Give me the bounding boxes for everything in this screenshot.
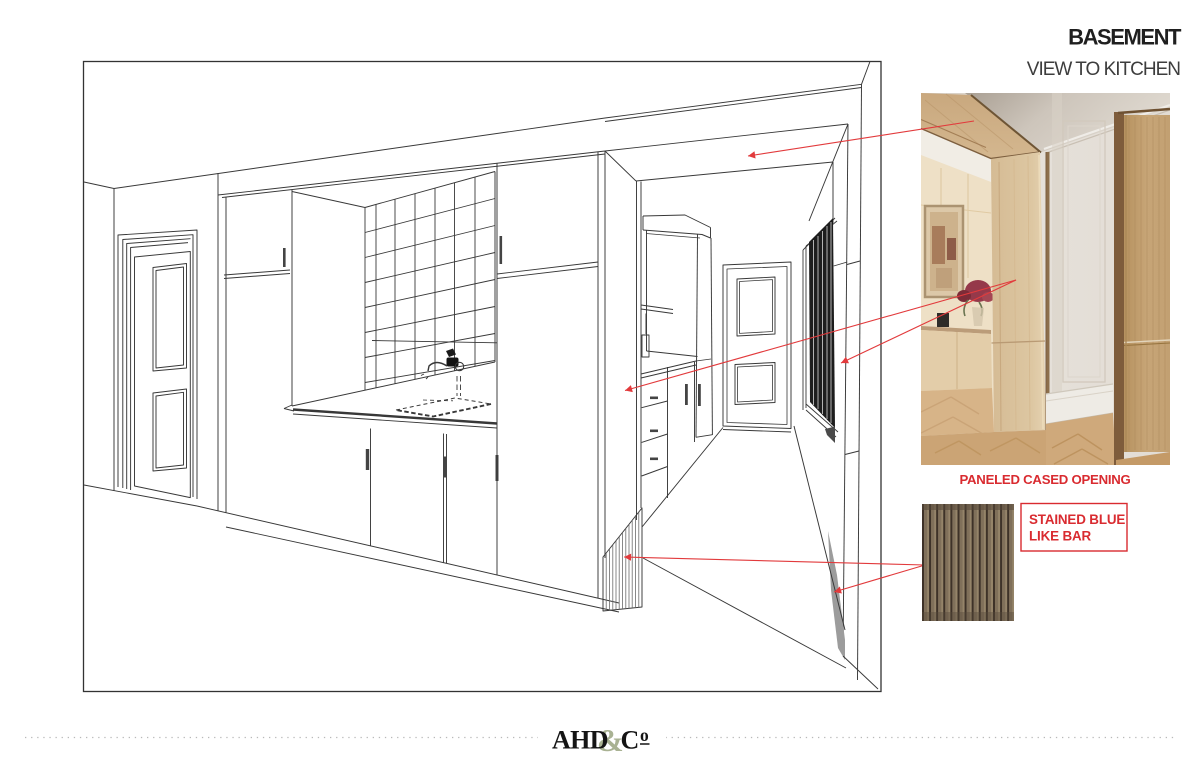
svg-text:PANELED CASED OPENING: PANELED CASED OPENING: [959, 472, 1130, 487]
svg-text:C: C: [621, 726, 640, 755]
svg-text:BASEMENT: BASEMENT: [1068, 25, 1182, 50]
svg-text:VIEW TO KITCHEN: VIEW TO KITCHEN: [1027, 59, 1180, 80]
svg-text:LIKE BAR: LIKE BAR: [1029, 529, 1092, 544]
svg-text:o: o: [640, 725, 649, 745]
svg-text:AHD: AHD: [552, 726, 608, 755]
svg-text:STAINED BLUE: STAINED BLUE: [1029, 512, 1125, 527]
